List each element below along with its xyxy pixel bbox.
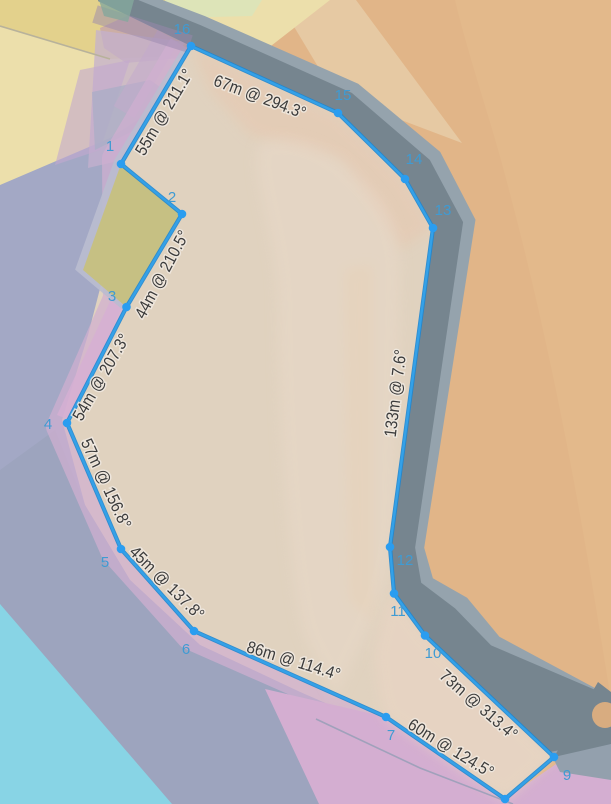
svg-text:9: 9 xyxy=(563,767,571,784)
svg-text:6: 6 xyxy=(182,641,190,658)
svg-text:1: 1 xyxy=(106,138,114,155)
svg-text:16: 16 xyxy=(174,21,191,38)
svg-text:13: 13 xyxy=(435,202,452,219)
svg-text:3: 3 xyxy=(108,288,116,305)
svg-text:2: 2 xyxy=(168,189,176,206)
svg-text:11: 11 xyxy=(390,603,406,620)
svg-text:4: 4 xyxy=(44,416,52,433)
svg-text:12: 12 xyxy=(397,552,414,569)
svg-text:14: 14 xyxy=(406,151,423,168)
svg-text:10: 10 xyxy=(425,645,442,662)
svg-text:5: 5 xyxy=(101,554,109,571)
svg-text:7: 7 xyxy=(387,727,395,744)
svg-text:15: 15 xyxy=(335,87,352,104)
